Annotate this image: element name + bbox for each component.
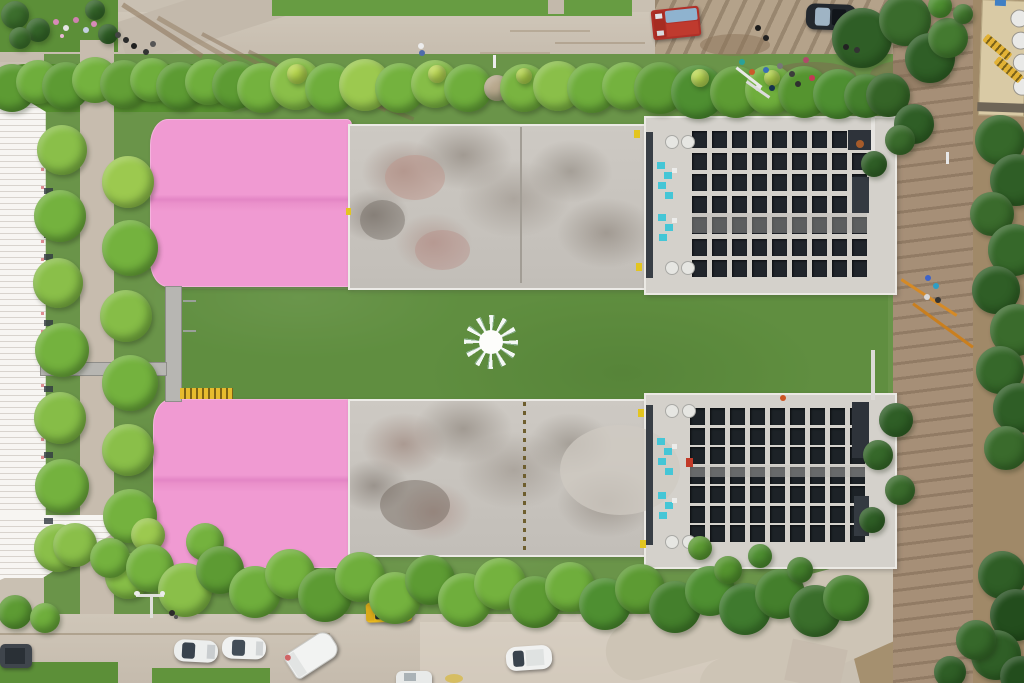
cab-window [655, 13, 662, 19]
flower [60, 34, 64, 38]
grid-cell [750, 486, 765, 503]
tree [691, 69, 709, 87]
tree [34, 392, 86, 444]
grid-cell [790, 525, 805, 542]
tree [102, 156, 154, 208]
grid-cell [790, 408, 805, 425]
lamp-head [134, 591, 140, 596]
gray-car [0, 644, 32, 668]
cyan-unit [664, 172, 672, 179]
tree [879, 403, 913, 437]
cyan-unit [664, 448, 672, 455]
tree [34, 190, 86, 242]
worker [933, 283, 939, 289]
person [143, 49, 149, 55]
grid-cell [772, 239, 787, 256]
worker [777, 63, 783, 69]
grid-cell [852, 260, 867, 277]
walkway-post [183, 300, 196, 302]
grid-cell [690, 486, 705, 503]
grid-cell [750, 408, 765, 425]
tree [287, 64, 307, 84]
cyan-unit [665, 502, 673, 509]
grid-cell [812, 153, 827, 170]
cyan-unit [665, 192, 673, 199]
tree [928, 18, 968, 58]
cyan-unit [657, 162, 665, 169]
truck-bed [666, 21, 699, 37]
grid-cell [710, 486, 725, 503]
grid-cell [810, 486, 825, 503]
yellow-mark [636, 263, 642, 271]
roof-stain [380, 480, 450, 530]
person [843, 44, 849, 50]
red-truck [651, 6, 702, 41]
roof-dotted-divider [523, 402, 526, 550]
windshield [182, 642, 196, 659]
grid-cell [812, 131, 827, 148]
grid-cell [830, 506, 845, 523]
walkway-vertical [165, 286, 182, 402]
grid-cell [692, 153, 707, 170]
tree [823, 575, 869, 621]
grid-cell [852, 239, 867, 256]
lamp-pole [150, 594, 153, 618]
grid-cell [732, 260, 747, 277]
grid-cell [730, 408, 745, 425]
yellow-striped-dock [180, 388, 233, 399]
grid-cell [832, 131, 847, 148]
tree [428, 65, 446, 83]
tree [516, 68, 532, 84]
grid-cell [730, 447, 745, 464]
car-trunk [256, 641, 263, 655]
grid-cell [830, 486, 845, 503]
person [115, 32, 121, 38]
grid-cell [710, 428, 725, 445]
cyan-unit [659, 512, 667, 519]
grid-cell [710, 447, 725, 464]
grid-cell [730, 428, 745, 445]
grid-cell [690, 428, 705, 445]
cyan-unit [659, 234, 667, 241]
grid-cell [812, 174, 827, 191]
worker [803, 57, 809, 63]
solar-panel [852, 177, 869, 213]
tree [934, 656, 966, 683]
grid-cell [792, 196, 807, 213]
north-grid-walk-band [692, 213, 867, 233]
grid-cell [752, 174, 767, 191]
grid-cell [810, 408, 825, 425]
walkway-post [183, 330, 196, 332]
roof-stain [360, 200, 405, 240]
yellow-object [445, 674, 463, 683]
tree [863, 440, 893, 470]
grid-cell [770, 428, 785, 445]
grid-cell [830, 408, 845, 425]
person [131, 43, 137, 49]
bottom-curb-line [0, 633, 330, 635]
grid-cell [692, 239, 707, 256]
white-unit [672, 168, 677, 173]
person [123, 37, 129, 43]
road-post [493, 55, 496, 68]
grid-cell [692, 196, 707, 213]
grid-cell [772, 196, 787, 213]
bottom-left-green-b [152, 668, 270, 683]
grid-cell [750, 506, 765, 523]
tree [714, 556, 742, 584]
central-lawn-tint [182, 289, 888, 399]
grid-cell [812, 196, 827, 213]
grid-cell [770, 408, 785, 425]
grid-cell [832, 239, 847, 256]
worker [789, 71, 795, 77]
grid-cell [792, 260, 807, 277]
grid-cell [770, 506, 785, 523]
tree [85, 0, 105, 20]
grid-cell [772, 153, 787, 170]
tree [33, 258, 83, 308]
grid-cell [732, 239, 747, 256]
grid-cell [712, 260, 727, 277]
tree [953, 4, 973, 24]
grid-cell [772, 174, 787, 191]
orange-dot [780, 395, 786, 401]
tank [665, 404, 679, 418]
person [174, 615, 178, 619]
grid-cell [752, 260, 767, 277]
aerial-campus-photo: Aerial drone photograph of a campus: two… [0, 0, 1024, 683]
tree [35, 459, 89, 513]
flower [53, 19, 59, 25]
grid-cell [792, 153, 807, 170]
car-trunk [207, 645, 216, 659]
tree [861, 151, 887, 177]
grid-cell [790, 486, 805, 503]
person [419, 50, 425, 56]
windshield [404, 673, 416, 681]
tank [665, 535, 679, 549]
grid-cell [810, 506, 825, 523]
grid-cell [690, 506, 705, 523]
sun-sculpture-center [479, 330, 503, 354]
grid-cell [750, 428, 765, 445]
flower [83, 27, 89, 33]
person [755, 25, 761, 31]
person [418, 43, 424, 49]
grid-cell [730, 506, 745, 523]
grid-cell [732, 196, 747, 213]
grid-cell [770, 486, 785, 503]
grid-cell [832, 260, 847, 277]
tank [665, 135, 679, 149]
worker [809, 75, 815, 81]
person [150, 41, 156, 47]
tree [37, 125, 87, 175]
cyan-unit [658, 492, 666, 499]
grid-cell [710, 525, 725, 542]
car-roof [5, 648, 25, 664]
flower [91, 21, 97, 27]
red-marker [686, 458, 693, 467]
tank [665, 261, 679, 275]
grid-cell [710, 408, 725, 425]
worker [935, 297, 941, 303]
grid-cell [832, 196, 847, 213]
grid-cell [752, 196, 767, 213]
roof-stain [385, 155, 445, 200]
white-car [222, 636, 267, 660]
tire-mark [555, 42, 645, 44]
grid-cell [730, 486, 745, 503]
windshield [512, 650, 524, 667]
grid-cell [792, 174, 807, 191]
tree [30, 603, 60, 633]
windshield [815, 7, 831, 26]
white-car-partial [396, 671, 432, 683]
grid-cell [750, 525, 765, 542]
tree [956, 620, 996, 660]
car-roof [525, 649, 544, 666]
grid-cell [732, 131, 747, 148]
grid-cell [712, 196, 727, 213]
grid-cell [810, 447, 825, 464]
tree [885, 125, 915, 155]
white-car [173, 639, 218, 663]
person [854, 47, 860, 53]
grid-cell [732, 153, 747, 170]
tank [681, 261, 695, 275]
grid-cell [832, 174, 847, 191]
worker [769, 85, 775, 91]
tree [100, 290, 152, 342]
grid-cell [752, 131, 767, 148]
grid-cell [752, 239, 767, 256]
grid-cell [732, 174, 747, 191]
flower [73, 17, 79, 23]
tank [1010, 9, 1024, 28]
tree [102, 424, 154, 476]
tree [35, 323, 89, 377]
worker [749, 69, 755, 75]
top-green-gap [548, 0, 564, 14]
cyan-unit [665, 224, 673, 231]
grid-cell [772, 260, 787, 277]
tree [787, 557, 813, 583]
tank [681, 135, 695, 149]
grid-cell [830, 447, 845, 464]
grid-cell [712, 174, 727, 191]
tank [1011, 31, 1024, 50]
grid-cell [710, 506, 725, 523]
grid-cell [692, 174, 707, 191]
road-post [946, 152, 949, 164]
roof-stain [415, 230, 470, 270]
grid-cell [810, 525, 825, 542]
tree [885, 475, 915, 505]
grid-cell [790, 447, 805, 464]
tree [984, 426, 1024, 470]
tire-mark [510, 30, 590, 32]
white-unit [672, 444, 677, 449]
yellow-mark [346, 208, 351, 215]
roof-divider [520, 127, 522, 283]
white-unit [672, 218, 677, 223]
worker [925, 275, 931, 281]
white-unit [672, 498, 677, 503]
tree [748, 544, 772, 568]
grid-cell [830, 525, 845, 542]
grid-cell [712, 239, 727, 256]
tan-utility-building [978, 0, 1024, 117]
yellow-mark [634, 130, 640, 138]
blue-bin [995, 0, 1006, 6]
cyan-unit [658, 214, 666, 221]
worker [795, 81, 801, 87]
grid-cell [712, 131, 727, 148]
worker [739, 59, 745, 65]
rust-spot [856, 140, 864, 148]
top-green-strip [272, 0, 632, 16]
tree [102, 355, 158, 411]
tree [859, 507, 885, 533]
flower [63, 25, 69, 31]
grid-cell [770, 525, 785, 542]
tank [682, 404, 696, 418]
lamp-head [160, 591, 165, 596]
grid-cell [830, 428, 845, 445]
yellow-mark [638, 409, 644, 417]
grid-cell [812, 260, 827, 277]
grid-cell [812, 239, 827, 256]
tree [9, 27, 31, 49]
worker [763, 67, 769, 73]
tree [688, 536, 712, 560]
grid-cell [792, 239, 807, 256]
solar-strip [646, 405, 653, 545]
grid-cell [752, 153, 767, 170]
cyan-unit [658, 458, 666, 465]
south-building-pink-roof [153, 399, 352, 568]
dark-edge [977, 102, 1024, 113]
tree [102, 220, 158, 276]
tree [1, 1, 29, 29]
grid-cell [832, 153, 847, 170]
cyan-unit [657, 438, 665, 445]
grid-cell [750, 447, 765, 464]
grid-cell [810, 428, 825, 445]
cab-window [657, 30, 664, 36]
south-grid-walk-band [690, 465, 865, 477]
windshield [232, 640, 246, 656]
cyan-unit [665, 468, 673, 475]
grid-cell [790, 428, 805, 445]
grid-cell [772, 131, 787, 148]
grid-cell [792, 131, 807, 148]
grid-cell [712, 153, 727, 170]
worker [924, 294, 930, 300]
solar-strip [646, 132, 653, 278]
utility-pole [871, 350, 875, 400]
tire-mark [480, 52, 550, 54]
tree [90, 538, 130, 578]
person [763, 35, 769, 41]
north-building-pink-roof [150, 119, 352, 287]
grid-cell [730, 525, 745, 542]
cyan-unit [658, 182, 666, 189]
mud-patch [700, 34, 770, 56]
grid-cell [790, 506, 805, 523]
grid-cell [770, 447, 785, 464]
white-car [505, 644, 553, 671]
